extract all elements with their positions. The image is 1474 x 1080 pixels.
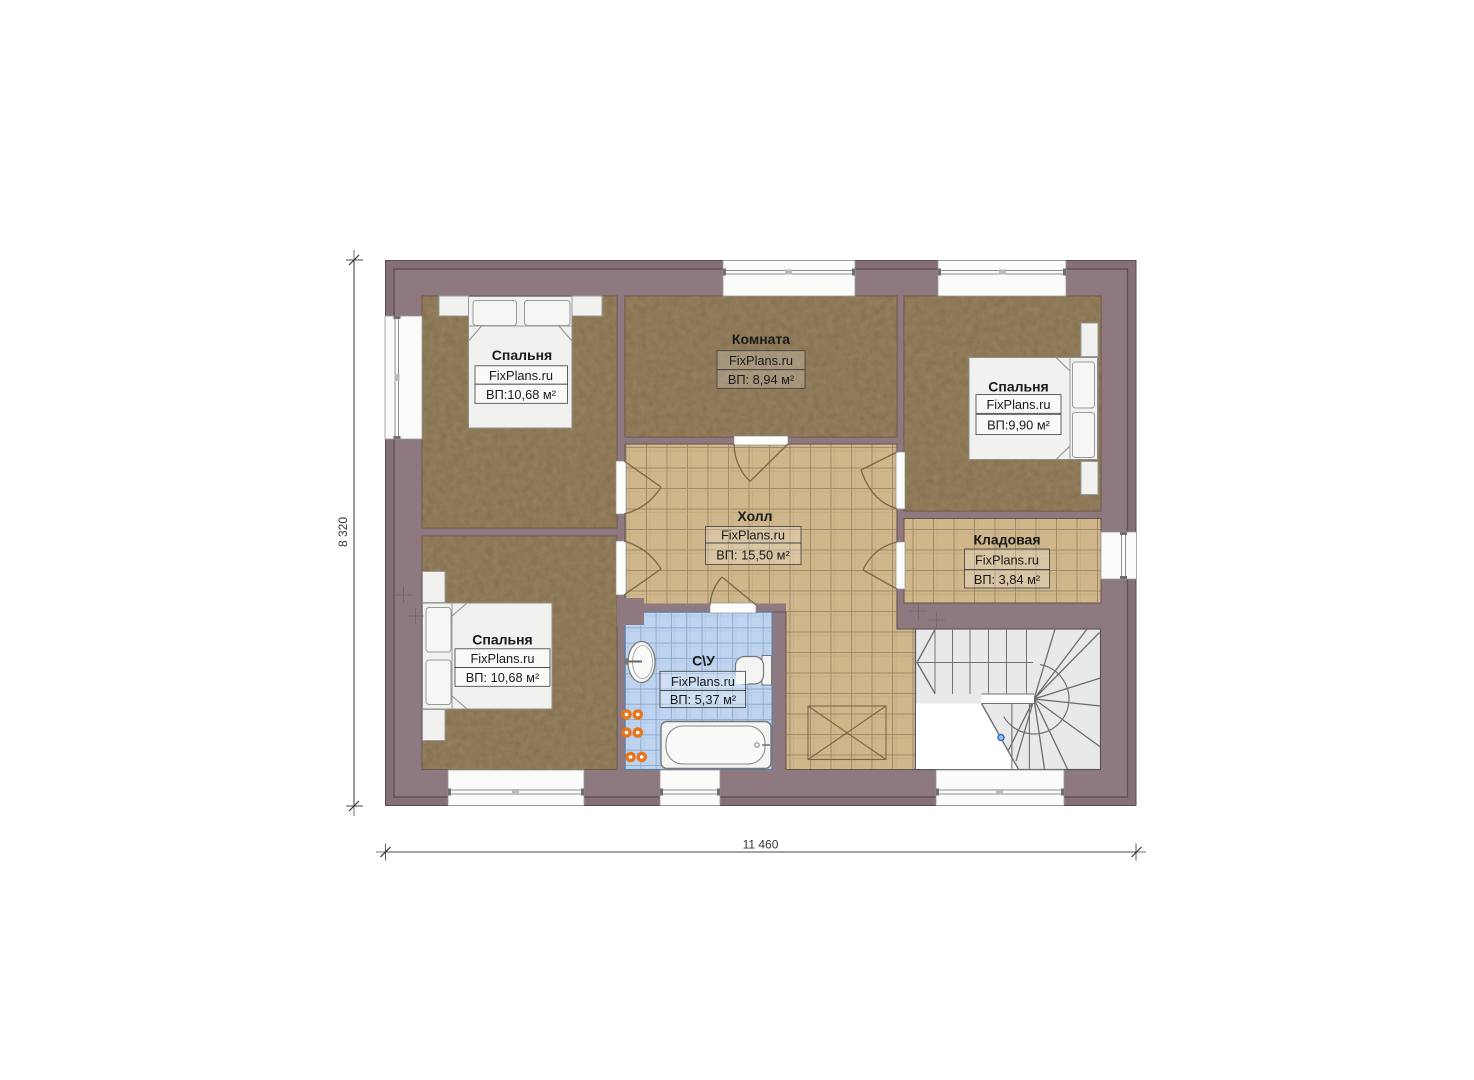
svg-text:ВП: 15,50 м²: ВП: 15,50 м² — [716, 547, 790, 562]
svg-text:ВП:10,68 м²: ВП:10,68 м² — [486, 387, 557, 402]
svg-text:Холл: Холл — [737, 508, 772, 524]
svg-text:С\У: С\У — [692, 653, 715, 669]
svg-text:FixPlans.ru: FixPlans.ru — [671, 674, 735, 689]
svg-text:Спальня: Спальня — [988, 379, 1048, 395]
svg-text:ВП:9,90 м²: ВП:9,90 м² — [987, 418, 1051, 433]
svg-text:FixPlans.ru: FixPlans.ru — [975, 552, 1039, 567]
svg-text:Кладовая: Кладовая — [973, 532, 1040, 548]
svg-text:FixPlans.ru: FixPlans.ru — [489, 368, 553, 383]
svg-text:FixPlans.ru: FixPlans.ru — [986, 397, 1050, 412]
svg-text:ВП: 8,94 м²: ВП: 8,94 м² — [728, 372, 795, 387]
svg-text:ВП: 10,68 м²: ВП: 10,68 м² — [466, 670, 540, 685]
svg-text:ВП: 3,84 м²: ВП: 3,84 м² — [974, 572, 1041, 587]
svg-text:Спальня: Спальня — [472, 632, 532, 648]
svg-text:8 320: 8 320 — [336, 517, 350, 547]
svg-text:FixPlans.ru: FixPlans.ru — [470, 651, 534, 666]
svg-text:FixPlans.ru: FixPlans.ru — [721, 528, 785, 543]
svg-text:FixPlans.ru: FixPlans.ru — [729, 353, 793, 368]
svg-text:ВП: 5,37 м²: ВП: 5,37 м² — [670, 692, 737, 707]
svg-text:Комната: Комната — [732, 331, 790, 347]
svg-text:Спальня: Спальня — [492, 347, 552, 363]
svg-text:11 460: 11 460 — [743, 838, 779, 852]
